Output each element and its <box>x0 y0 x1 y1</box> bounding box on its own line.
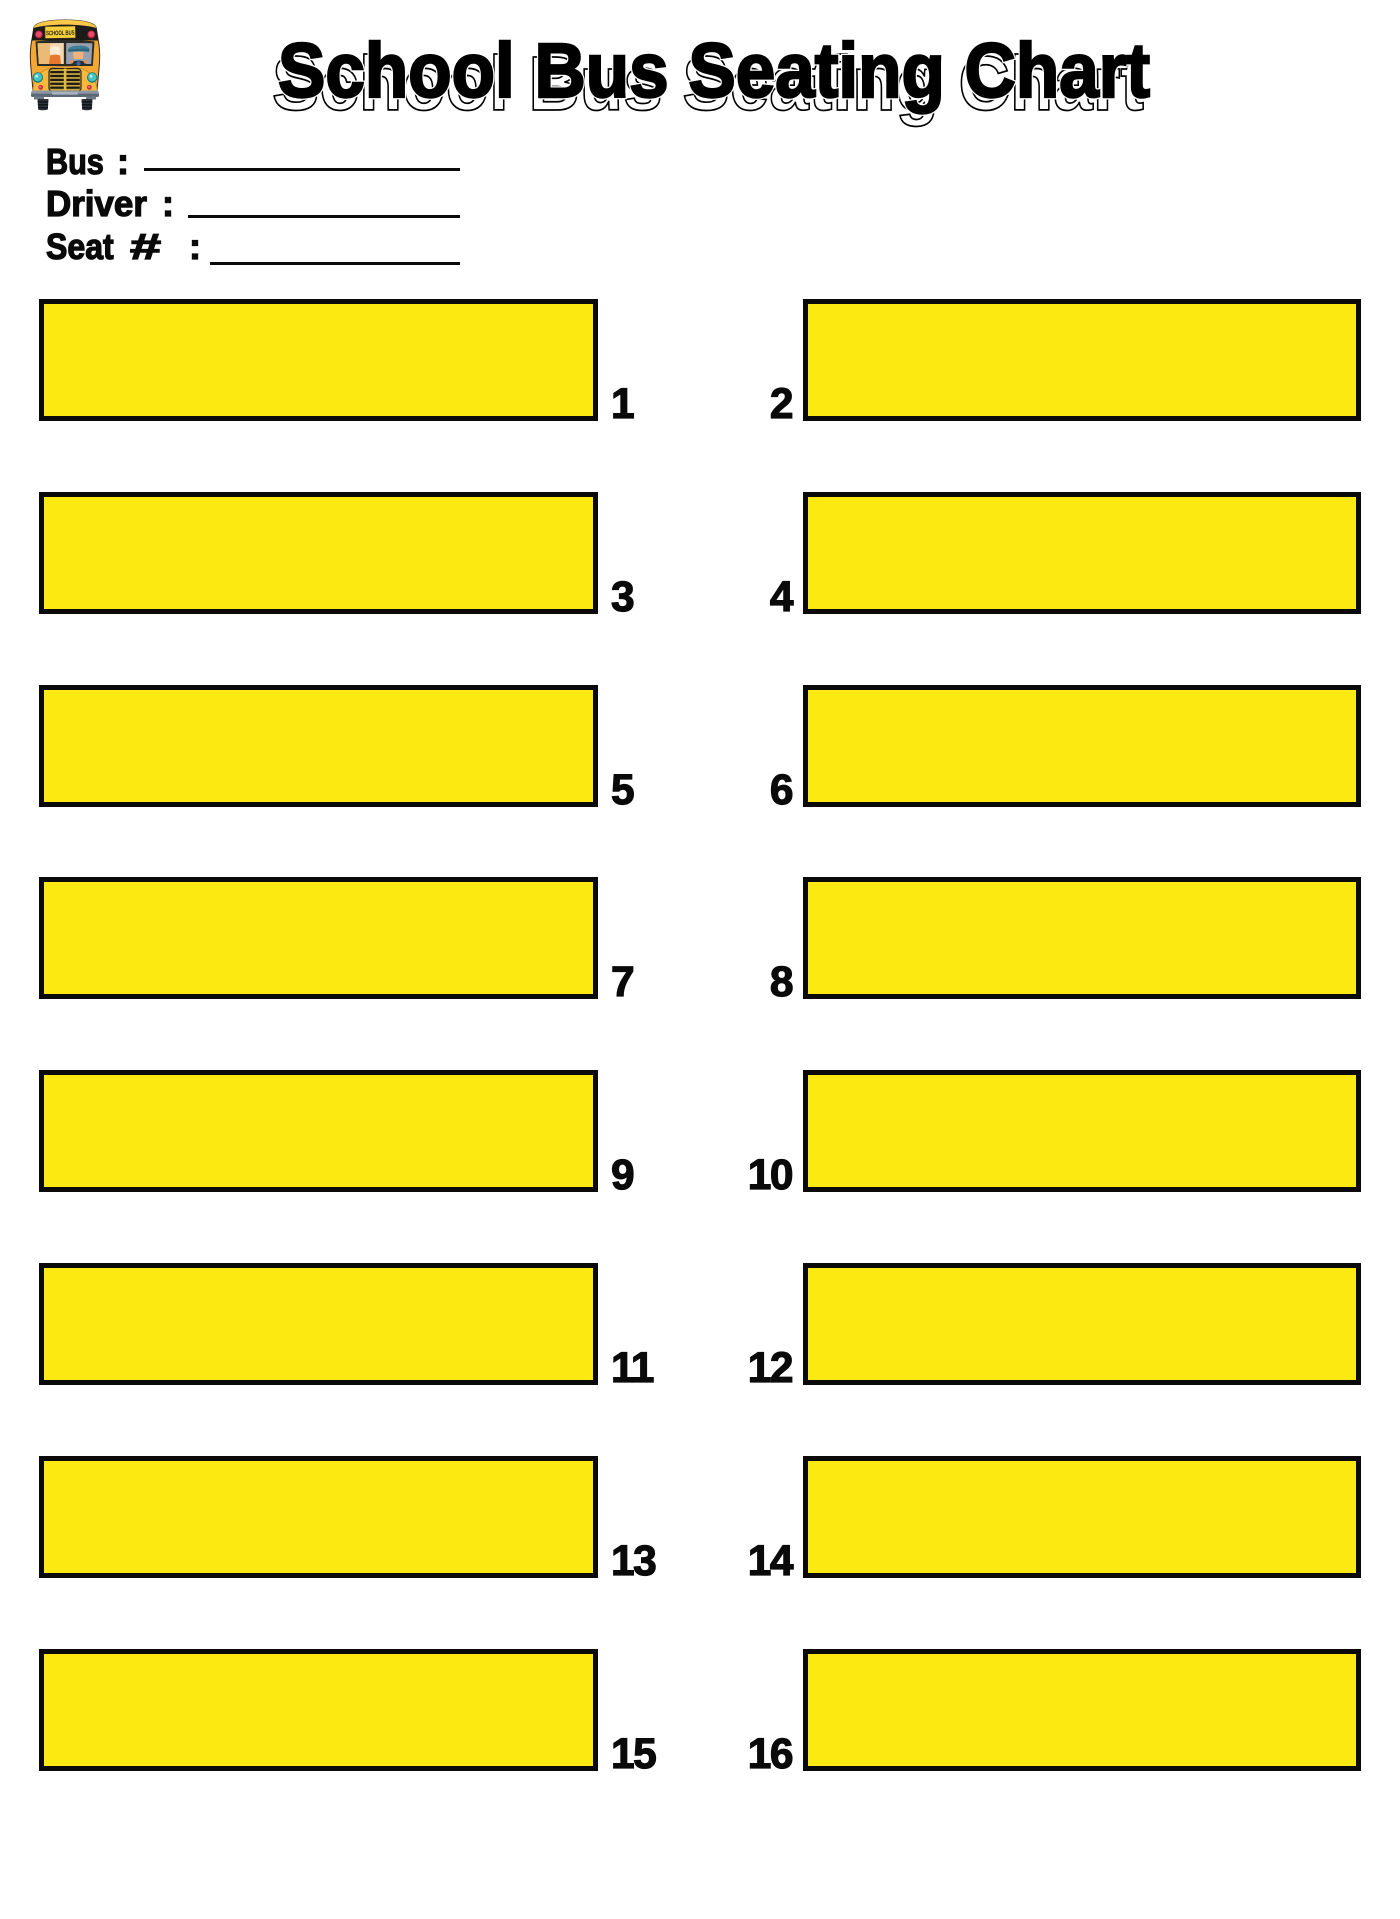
svg-text:SCHOOL BUS: SCHOOL BUS <box>46 30 75 38</box>
svg-text:School Bus Seating Chart: School Bus Seating Chart <box>278 28 1150 114</box>
